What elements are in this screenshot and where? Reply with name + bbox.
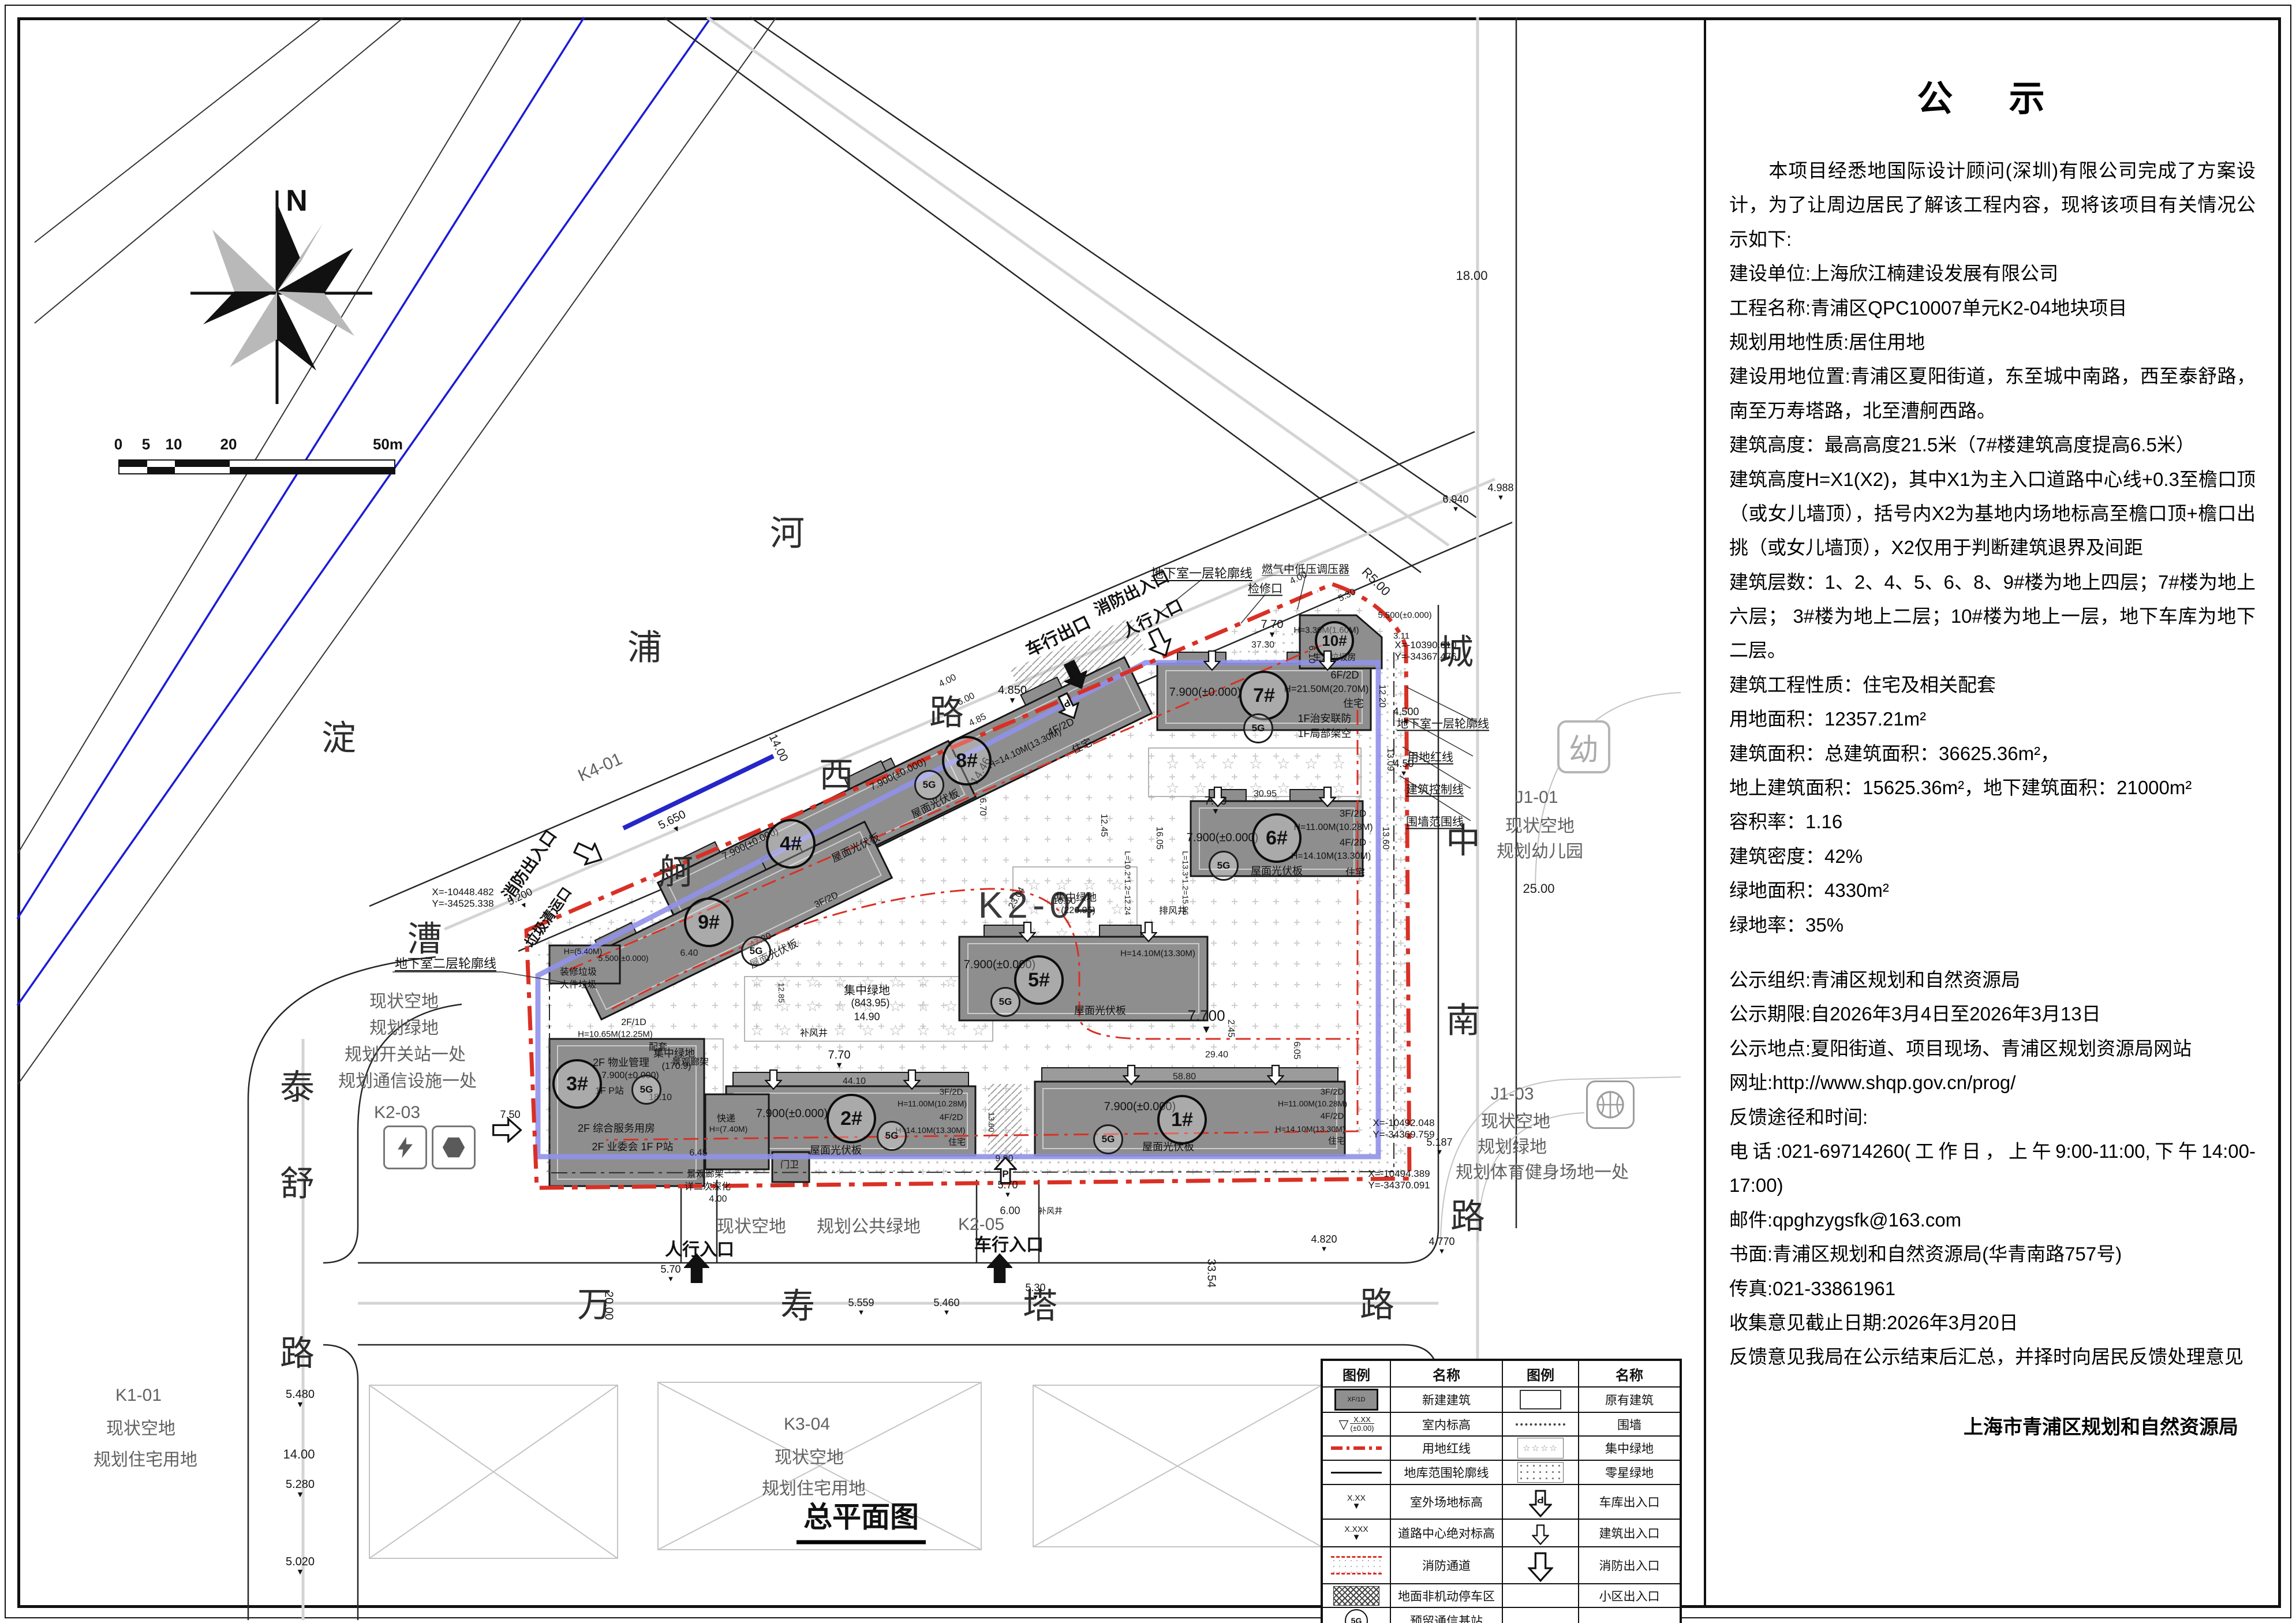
plan-label: 6.00 <box>1000 1205 1020 1217</box>
legend-building-entrance-icon <box>1532 1521 1549 1545</box>
legend-fire-entrance-icon <box>1528 1549 1553 1582</box>
building-number: 4# <box>766 819 816 869</box>
plan-label: 5.500(±0.000) <box>1378 611 1431 620</box>
plan-label: 4F/2D <box>1340 837 1366 848</box>
plan-label: 现状空地 <box>106 1414 175 1439</box>
plan-label: Y=-34370.091 <box>1368 1180 1430 1191</box>
plan-label: H=11.00M(10.28M) <box>898 1099 967 1108</box>
plan-label: 30.95 <box>1254 789 1277 799</box>
plan-label: Y=-34367.476 <box>1394 651 1456 663</box>
plan-label: 规划幼儿园 <box>1497 837 1583 862</box>
building-entrance-arrow-icon <box>1140 919 1157 943</box>
plan-label: H=14.10M(13.30M) <box>1291 851 1371 862</box>
legend-fence-icon <box>1516 1423 1565 1426</box>
notice-line: 书面:青浦区规划和自然资源局(华青南路757号) <box>1729 1237 2256 1271</box>
building-number: 9# <box>684 897 734 947</box>
legend-parking-area-icon <box>1333 1586 1379 1606</box>
plan-label: 规划公共绿地 <box>817 1212 921 1237</box>
plan-label: 4.820 <box>1311 1234 1337 1252</box>
plan-label: 车行入口 <box>974 1231 1044 1256</box>
plan-label: K1-01 <box>115 1386 162 1405</box>
legend-garage-entrance-icon: P <box>1529 1486 1552 1517</box>
legend-road-level-icon: X.XXX▼ <box>1344 1525 1368 1542</box>
notice-line: 公示组织:青浦区规划和自然资源局 <box>1729 963 2256 997</box>
north-arrow <box>190 190 372 404</box>
plan-label: 5.30 <box>1025 1282 1045 1301</box>
notice-line: 收集意见截止日期:2026年3月20日 <box>1729 1306 2256 1340</box>
legend-label: 建筑出入口 <box>1579 1519 1680 1547</box>
plan-label: N <box>286 184 308 218</box>
plan-label: 16.05 <box>1154 827 1164 850</box>
plan-label: 3F/2D <box>940 1087 963 1097</box>
notice-line: 建筑工程性质：住宅及相关配套 <box>1729 668 2256 702</box>
plan-label: 快递 <box>717 1110 735 1124</box>
plan-label: 路 <box>929 685 964 735</box>
legend-garage-outline-icon <box>1331 1472 1382 1474</box>
legend-label: 围墙 <box>1579 1412 1680 1436</box>
plan-label: 10 <box>166 436 182 454</box>
plan-label: 12.20 <box>1377 685 1387 708</box>
notice-line: 建筑高度H=X1(X2)，其中X1为主入口道路中心线+0.3至檐口顶（或女儿墙顶… <box>1729 462 2256 565</box>
plan-label: 18.00 <box>1456 268 1487 283</box>
plan-label: 现状空地 <box>1481 1107 1550 1132</box>
5g-badge: 5G <box>914 770 944 800</box>
legend-label: 预留通信基站 <box>1390 1607 1502 1623</box>
plan-label: 7.700 <box>1187 1008 1225 1035</box>
plan-label: 13.60 <box>1380 827 1390 850</box>
legend-label: 地库范围轮廓线 <box>1390 1460 1502 1484</box>
legend-header: 名称 <box>1390 1360 1502 1387</box>
legend-label: 集中绿地 <box>1579 1436 1680 1460</box>
kindergarten-icon: 幼 <box>1557 720 1610 773</box>
plan-label: 5.70 <box>660 1264 680 1282</box>
plan-label: 6.10 <box>1306 645 1317 663</box>
notice-line: 地上建筑面积：15625.36m²，地下建筑面积：21000m² <box>1729 771 2256 805</box>
plan-label: 2F 业委会 1F P站 <box>592 1139 673 1154</box>
plan-label: Y=-34369.759 <box>1373 1129 1434 1140</box>
notice-title: 公 示 <box>1729 69 2256 121</box>
plan-label: 1F治安联防 <box>1297 710 1351 726</box>
plan-label: X=-10448.482 <box>432 887 493 898</box>
plan-label: H=21.50M(20.70M) <box>1284 683 1369 695</box>
plan-label: 规划开关站一处 <box>345 1040 466 1065</box>
plan-label: 3F/2D <box>1321 1087 1344 1097</box>
legend-label: 室内标高 <box>1390 1412 1502 1436</box>
legend-fire-lane-icon <box>1331 1556 1382 1575</box>
notice-line: 传真:021-33861961 <box>1729 1272 2256 1306</box>
plan-label: 2F 物业管理 <box>593 1054 649 1069</box>
legend-label: 原有建筑 <box>1579 1387 1680 1412</box>
legend-existing-building-icon <box>1520 1390 1561 1409</box>
plan-label: 检修口 <box>1248 579 1282 596</box>
plan-label: 7.70 <box>828 1049 851 1070</box>
plan-label: 规划通信设施一处 <box>338 1067 477 1092</box>
legend-red-line-icon <box>1331 1446 1382 1450</box>
plan-label: 现状空地 <box>717 1212 786 1237</box>
notice-line: 建设用地位置:青浦区夏阳街道，东至城中南路，西至泰舒路，南至万寿塔路，北至漕舸西… <box>1729 359 2256 428</box>
plan-label: 装修垃圾 <box>560 964 597 978</box>
plan-label: 13.09 <box>1385 748 1395 771</box>
plan-label: 4.850 <box>998 685 1027 705</box>
plan-label: 2.45 <box>1225 1019 1236 1037</box>
building-entrance-arrow-icon <box>1267 1062 1284 1086</box>
legend-new-building-icon: XF/1D <box>1334 1389 1378 1411</box>
plan-label: 现状空地 <box>369 987 439 1012</box>
plan-label: 1F局部架空 <box>1297 726 1351 741</box>
plan-label: 泰 <box>280 1060 315 1110</box>
legend-header: 名称 <box>1579 1360 1680 1387</box>
plan-label: H=11.00M(10.28M) <box>1278 1099 1347 1108</box>
plan-label: L=10.2*1.2=12.24 <box>1123 851 1132 915</box>
plan-label: 门卫 <box>780 1157 799 1170</box>
notice-line <box>1729 942 2256 963</box>
plan-label: 2F 综合服务用房 <box>578 1120 655 1135</box>
plan-label: 补风井 <box>1038 1205 1063 1217</box>
plan-label: 详二次深化 <box>685 1179 731 1192</box>
plan-label: 现状空地 <box>775 1443 844 1468</box>
legend-label: 消防出入口 <box>1579 1547 1680 1584</box>
building-entrance-arrow-icon <box>765 1067 782 1090</box>
plan-label: J1-01 <box>1515 788 1558 807</box>
plan-label: 总平面图 <box>797 1494 926 1545</box>
plan-label: (170.9) <box>662 1061 691 1072</box>
plan-label: 建筑控制线 <box>1406 780 1464 797</box>
plan-label: 住宅 <box>1345 865 1365 879</box>
plan-label: 20 <box>220 436 237 454</box>
building-number: 2# <box>827 1094 876 1143</box>
legend-header: 图例 <box>1502 1360 1579 1387</box>
building-entrance-arrow-icon <box>1209 784 1226 807</box>
plan-label: 围墙范围线 <box>1406 813 1464 829</box>
plan-label: 7.900(±0.000) <box>1187 832 1258 845</box>
plan-label: H=10.65M(12.25M) <box>578 1030 653 1039</box>
plan-label: 4.500 <box>1393 706 1419 725</box>
building-entrance-arrow-icon <box>1123 1062 1140 1086</box>
plan-label: L=13.3*1.2=15.96 <box>1181 851 1190 915</box>
plan-label: 大件垃圾 <box>560 977 597 990</box>
plan-label: 5.559 <box>848 1297 874 1316</box>
plan-label: 58.80 <box>1173 1072 1196 1082</box>
legend-indoor-level-icon: ▽X.XX(±0.00) <box>1338 1416 1374 1433</box>
plan-label: 规划绿地 <box>1478 1132 1547 1158</box>
legend-table: 图例名称图例名称XF/1D新建建筑原有建筑▽X.XX(±0.00)室内标高围墙用… <box>1321 1359 1682 1623</box>
notice-line: 公示期限:自2026年3月4日至2026年3月13日 <box>1729 997 2256 1031</box>
plan-label: 4.988 <box>1487 483 1513 501</box>
plan-label: 6.45 <box>689 1148 707 1158</box>
notice-line: 绿地面积：4330m² <box>1729 873 2256 907</box>
community-entrance-arrow-icon <box>684 1254 709 1287</box>
svg-text:P: P <box>1002 1169 1008 1180</box>
legend-label: 车库出入口 <box>1579 1484 1680 1519</box>
legend-header: 图例 <box>1322 1360 1390 1387</box>
5g-badge: 5G <box>1209 851 1239 881</box>
plan-label: (220.95) <box>1061 906 1095 916</box>
plan-label: 路 <box>1360 1277 1394 1327</box>
notice-line: 公示地点:夏阳街道、项目现场、青浦区规划资源局网站 <box>1729 1031 2256 1065</box>
fire-entrance-arrow-icon <box>489 1117 522 1143</box>
legend-label: 道路中心绝对标高 <box>1390 1519 1502 1547</box>
plan-label: 6.05 <box>1291 1041 1302 1059</box>
building-number: 7# <box>1239 671 1289 720</box>
plan-label: J1-03 <box>1490 1085 1534 1104</box>
plan-label: 屋面光伏板 <box>1251 863 1303 878</box>
legend-comm-base-icon: 5G <box>1345 1609 1368 1623</box>
plan-label: H=14.10M(13.30M) <box>1275 1124 1345 1134</box>
scale-bar <box>118 459 395 474</box>
building-number: 5# <box>1014 955 1064 1005</box>
plan-label: 淀 <box>321 710 356 761</box>
plan-label: 50m <box>373 436 403 454</box>
notice-line: 绿地率：35% <box>1729 908 2256 942</box>
legend-label: 消防通道 <box>1390 1547 1502 1584</box>
plan-label: 6.70 <box>977 798 988 816</box>
plan-label: 住宅 <box>948 1136 966 1148</box>
legend-outdoor-level-icon: X.XX▼ <box>1347 1494 1366 1510</box>
plan-label: 5.280 <box>286 1479 315 1499</box>
plan-label: 西 <box>819 747 854 798</box>
plan-label: 25.00 <box>1523 881 1554 896</box>
plan-label: 景观廊架 <box>687 1166 724 1180</box>
plan-label: Y=-34525.338 <box>432 898 493 910</box>
sports-ground-icon <box>1586 1080 1635 1129</box>
plan-label: 4F/2D <box>1321 1112 1344 1121</box>
plan-label: 住宅 <box>1328 1135 1345 1147</box>
legend-label: 小区出入口 <box>1579 1584 1680 1607</box>
plan-label: 集中绿地 <box>844 981 890 998</box>
5g-badge: 5G <box>877 1121 907 1151</box>
notice-line: 反馈途径和时间: <box>1729 1100 2256 1134</box>
plan-label: 5.460 <box>933 1297 959 1316</box>
plan-label: 7.900(±0.000) <box>756 1108 828 1121</box>
plan-label: 4F/2D <box>940 1113 963 1123</box>
notice-line: 网址:http://www.shqp.gov.cn/prog/ <box>1729 1065 2256 1100</box>
building-number: 8# <box>942 736 992 786</box>
plan-label: 6.940 <box>1442 494 1468 513</box>
plan-label: 住宅 <box>1343 695 1364 710</box>
plan-label: 补风井 <box>800 1025 828 1039</box>
plan-label: 44.10 <box>843 1076 866 1087</box>
notice-line: 建筑密度：42% <box>1729 839 2256 873</box>
plan-label: 用地红线 <box>1407 748 1453 765</box>
plan-label: 南 <box>1446 993 1480 1043</box>
plan-label: 浦 <box>627 620 662 670</box>
plan-label: 13.60 <box>987 1112 996 1132</box>
plan-label: 37.30 <box>1251 640 1274 650</box>
5g-badge: 5G <box>631 1075 661 1105</box>
plan-label: 14.00 <box>283 1447 315 1462</box>
plan-label: 规划绿地 <box>369 1014 439 1039</box>
plan-label: 29.40 <box>1205 1050 1228 1060</box>
plan-label: H=(7.40M) <box>709 1124 748 1134</box>
building-number: 3# <box>552 1059 602 1109</box>
plan-label: 河 <box>770 506 805 556</box>
plan-label: 5.500(±0.000) <box>598 953 648 963</box>
notice-signature: 上海市青浦区规划和自然资源局 <box>1729 1411 2256 1439</box>
notice-line: 邮件:qpghzygsfk@163.com <box>1729 1203 2256 1237</box>
plan-label: H=(5.40M) <box>564 947 603 956</box>
notice-line: 建设单位:上海欣江楠建设发展有限公司 <box>1729 256 2256 290</box>
plan-label: 6.40 <box>680 948 698 959</box>
svg-text:P: P <box>1537 1494 1543 1505</box>
legend-label: 零星绿地 <box>1579 1460 1680 1484</box>
notice-line: 容积率：1.16 <box>1729 805 2256 839</box>
plan-label: 5.480 <box>286 1389 315 1409</box>
telecom-facility-icon <box>432 1125 476 1169</box>
plan-label: 0 <box>114 436 122 454</box>
plan-label: 舸 <box>659 844 693 895</box>
notice-line: 工程名称:青浦区QPC10007单元K2-04地块项目 <box>1729 291 2256 325</box>
plan-label: 5 <box>142 436 150 454</box>
notice-line: 建筑高度：最高高度21.5米（7#楼建筑高度提高6.5米） <box>1729 428 2256 462</box>
plan-label: 3F/2D <box>1340 808 1366 820</box>
plan-label: 屋面光伏板 <box>810 1142 862 1157</box>
building-number: 1# <box>1157 1095 1207 1145</box>
plan-label: 现状空地 <box>1505 811 1575 837</box>
5g-badge: 5G <box>990 987 1020 1017</box>
legend-label: 室外场地标高 <box>1390 1484 1502 1519</box>
building-entrance-arrow-icon <box>1019 919 1036 943</box>
building-number: 6# <box>1252 813 1302 863</box>
legend-label <box>1579 1607 1680 1623</box>
plan-label: 4.770 <box>1429 1236 1454 1255</box>
plan-label: 地下室一层轮廓线 <box>1151 563 1252 582</box>
plan-label: 地下室二层轮廓线 <box>395 953 496 972</box>
legend-label: 用地红线 <box>1390 1436 1502 1460</box>
plan-label: 6F/2D <box>1330 670 1359 682</box>
legend-dot-green-icon <box>1517 1462 1564 1483</box>
notice-line: 规划用地性质:居住用地 <box>1729 325 2256 359</box>
plan-label: K3-04 <box>784 1415 830 1434</box>
plan-label: 路 <box>1450 1189 1485 1239</box>
notice-line: 电话:021-69714260(工作日，上午9:00-11:00,下午14:00… <box>1729 1134 2256 1203</box>
plan-label: 屋面光伏板 <box>1074 1003 1126 1018</box>
legend-star-green-icon: ☆☆☆☆ <box>1517 1438 1564 1459</box>
notice-line: 本项目经悉地国际设计顾问(深圳)有限公司完成了方案设计，为了让周边居民了解该工程… <box>1729 154 2256 256</box>
building-entrance-arrow-icon <box>903 1067 921 1090</box>
plan-label: 4.00 <box>709 1194 727 1205</box>
plan-label: 寿 <box>780 1278 815 1329</box>
plan-label: 7.70 <box>1261 619 1284 640</box>
plan-label: H=14.10M(13.30M) <box>1120 949 1195 959</box>
legend-label: 地面非机动停车区 <box>1390 1584 1502 1607</box>
plan-label: 2F/1D <box>621 1018 646 1028</box>
drawing-sheet: ☆ <box>0 0 2296 1623</box>
building-entrance-arrow-icon <box>1319 648 1336 671</box>
plan-label: 20.00 <box>602 1291 615 1320</box>
notice-line: 建筑面积：总建筑面积：36625.36m²， <box>1729 736 2256 771</box>
plan-label: 10.50 <box>1053 896 1076 907</box>
notice-line: 建筑层数：1、2、4、5、6、8、9#楼为地上四层；7#楼为地上六层； 3#楼为… <box>1729 565 2256 668</box>
notice-body: 本项目经悉地国际设计顾问(深圳)有限公司完成了方案设计，为了让周边居民了解该工程… <box>1729 154 2256 1374</box>
5g-badge: 5G <box>1093 1124 1123 1154</box>
building-entrance-arrow-icon <box>1319 784 1336 807</box>
notice-line: 反馈意见我局在公示结束后汇总，并择时向居民反馈处理意见 <box>1729 1340 2256 1374</box>
building-entrance-arrow-icon <box>1203 648 1221 671</box>
notice-line: 用地面积：12357.21m² <box>1729 702 2256 736</box>
plan-label: X=-10390.610 <box>1394 640 1456 651</box>
plan-label: 舒 <box>280 1156 315 1206</box>
plan-label: 路 <box>280 1326 315 1376</box>
5g-badge: 5G <box>741 936 771 966</box>
plan-label: (843.95) <box>851 997 889 1009</box>
power-station-icon <box>383 1125 427 1169</box>
legend-label: 新建建筑 <box>1390 1387 1502 1412</box>
plan-label: 14.90 <box>854 1011 880 1023</box>
plan-label: 集中绿地 <box>653 1045 695 1060</box>
5g-badge: 5G <box>1243 713 1273 743</box>
plan-label: 33.54 <box>1205 1259 1218 1288</box>
plan-label: X=-10494.389 <box>1368 1168 1430 1180</box>
plan-label: 12.85 <box>777 982 786 1003</box>
community-entrance-arrow-icon <box>987 1254 1012 1287</box>
plan-label: K2-03 <box>374 1103 420 1123</box>
plan-label: 规划体育健身场地一处 <box>1456 1158 1629 1183</box>
plan-label: 5.020 <box>286 1556 315 1577</box>
plan-label: 4.50 <box>1393 758 1414 777</box>
plan-label: 12.45 <box>1098 814 1109 837</box>
plan-label: 5.187 <box>1426 1137 1452 1155</box>
plan-label: X=-10492.048 <box>1373 1117 1434 1129</box>
notice-panel: 公 示 本项目经悉地国际设计顾问(深圳)有限公司完成了方案设计，为了让周边居民了… <box>1729 69 2256 1439</box>
plan-label: 7.900(±0.000) <box>1169 686 1241 700</box>
plan-label: 规划住宅用地 <box>94 1445 197 1471</box>
garage-entrance-arrow-icon: P <box>994 1157 1017 1187</box>
plan-label: H=11.00M(10.28M) <box>1293 822 1373 833</box>
